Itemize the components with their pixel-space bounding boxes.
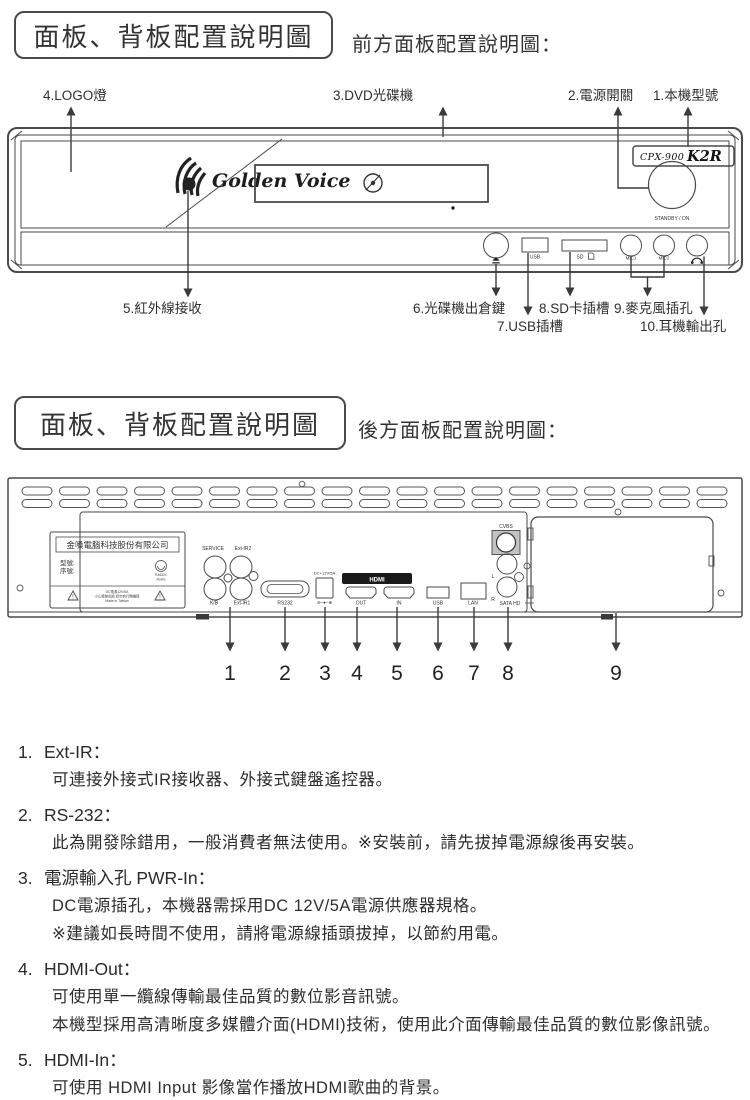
sd-card-icon	[588, 253, 593, 259]
rohs-code: R46321	[155, 573, 167, 577]
rs232-label: RS232	[277, 601, 293, 607]
golden-voice-logo-icon	[177, 158, 205, 196]
model-suffix: K2R	[686, 148, 722, 165]
note3-text-2: ※建議如長時間不使用，請將電源線插頭拔掉，以節約用電。	[18, 920, 734, 948]
model-prefix: CPX-900	[640, 152, 684, 163]
callout-mic-jacks: 9.麥克風插孔	[614, 301, 693, 316]
note2-text: 此為開發除錯用，一般消費者無法使用。※安裝前，請先拔掉電源線後再安裝。	[18, 829, 734, 857]
sata-hd-bay	[528, 517, 714, 612]
note1-title: Ext-IR：	[44, 742, 110, 762]
note2-number: 2.	[18, 801, 44, 829]
warn-line1: DC電源12V/5A	[106, 589, 130, 594]
brand-wordmark: Golden Voice	[212, 170, 350, 192]
callout-dvd-drive: 3.DVD光碟機	[333, 88, 414, 103]
spec-sticker: 金嗓電腦科技股份有限公司 型號: 序號: R46321 RoHS ! ! DC電…	[50, 532, 185, 608]
manual-page: 面板、背板配置說明圖 前方面板配置說明圖： 4.LOGO燈 3.DVD光碟機 2…	[0, 0, 750, 1100]
warning-triangle-icon-right: !	[155, 591, 165, 601]
standby-label: STANDBY / ON	[655, 216, 690, 222]
callout-headphone-out: 10.耳機輸出孔	[640, 319, 727, 334]
callout-leader-lines-bottom	[188, 191, 704, 314]
extir2-label: Ext-IR2	[235, 546, 252, 552]
note4-title: HDMI-Out：	[44, 959, 140, 979]
usb-label: USB	[530, 255, 541, 261]
note1-number: 1.	[18, 738, 44, 766]
disc-icon	[364, 174, 382, 192]
callout-ir-receiver: 5.紅外線接收	[123, 300, 202, 316]
audio-left-jack	[497, 554, 517, 574]
extir1-label: Ext-IR1	[234, 601, 251, 607]
note-item-3: 3.電源輸入孔 PWR-In： DC電源插孔，本機器需採用DC 12V/5A電源…	[18, 864, 734, 948]
number-9: 9	[610, 662, 622, 685]
note-item-5: 5.HDMI-In： 可使用 HDMI Input 影像當作播放HDMI歌曲的背…	[18, 1046, 734, 1100]
model-badge: CPX-900 K2R	[633, 146, 734, 166]
sd-label: SD	[577, 255, 584, 261]
warning-triangle-icon-left: !	[68, 591, 78, 601]
rs232-port: RS232	[261, 581, 309, 607]
note3-text-1: DC電源插孔，本機器需採用DC 12V/5A電源供應器規格。	[18, 892, 734, 920]
standby-button: STANDBY / ON	[649, 162, 696, 223]
front-panel-diagram: 4.LOGO燈 3.DVD光碟機 2.電源開關 1.本機型號	[0, 60, 750, 345]
callout-sd-slot: 8.SD卡插槽	[539, 301, 610, 316]
back-panel-diagram: 金嗓電腦科技股份有限公司 型號: 序號: R46321 RoHS ! ! DC電…	[0, 470, 750, 700]
warn-line3: Made in Taiwan	[105, 599, 129, 603]
cvbs-label: CVBS	[499, 524, 513, 530]
lan-label: LAN	[468, 601, 478, 607]
company-name: 金嗓電腦科技股份有限公司	[66, 540, 168, 550]
number-8: 8	[502, 662, 514, 685]
kb-label: K/B	[210, 601, 219, 607]
note4-text-2: 本機型採用高清晰度多媒體介面(HDMI)技術，使用此介面傳輸最佳品質的數位影像訊…	[18, 1011, 734, 1039]
number-2: 2	[279, 662, 291, 685]
rohs-label: RoHS	[156, 578, 166, 582]
section1-title: 面板、背板配置說明圖	[33, 17, 313, 54]
service-extir-jacks: SERVICE Ext-IR2 K/B Ext-IR1	[202, 546, 258, 607]
note-item-1: 1.Ext-IR： 可連接外接式IR接收器、外接式鍵盤遙控器。	[18, 738, 734, 794]
number-6: 6	[432, 662, 444, 685]
note1-text: 可連接外接式IR接收器、外接式鍵盤遙控器。	[18, 766, 734, 794]
number-leader-lines	[230, 607, 616, 650]
note2-title: RS-232：	[44, 805, 121, 825]
sata-label: SATA HD	[500, 601, 521, 607]
hdmi-out-label: OUT	[356, 601, 367, 607]
rohs-icon: R46321 RoHS	[155, 561, 167, 582]
service-label: SERVICE	[202, 546, 225, 552]
note5-title: HDMI-In：	[44, 1050, 127, 1070]
power-in-jack: DC+12V/5A ⊖–●–⊕	[314, 571, 336, 606]
callout-power-switch: 2.電源開關	[568, 88, 633, 103]
headphone-icon	[691, 258, 703, 264]
note-item-2: 2.RS-232： 此為開發除錯用，一般消費者無法使用。※安裝前，請先拔掉電源線…	[18, 801, 734, 857]
section1-title-box: 面板、背板配置說明圖	[14, 11, 333, 59]
callout-eject-key: 6.光碟機出倉鍵	[413, 301, 506, 316]
model-row-label: 型號:	[60, 558, 75, 567]
usb-port-front: USB	[522, 238, 548, 261]
dc-label: DC+12V/5A	[314, 571, 336, 576]
vent-grid	[22, 487, 727, 508]
note4-text-1: 可使用單一纜線傳輸最佳品質的數位影音訊號。	[18, 983, 734, 1011]
number-labels: 1 2 3 4 5 6 7 8 9	[224, 662, 622, 685]
eject-button	[484, 233, 509, 264]
number-5: 5	[391, 662, 403, 685]
hdmi-out-connector	[346, 587, 376, 598]
right-label: R	[491, 597, 495, 603]
callout-usb-slot: 7.USB插槽	[497, 319, 563, 334]
callout-model-number: 1.本機型號	[653, 88, 719, 103]
section2-subtitle: 後方面板配置說明圖：	[358, 414, 568, 443]
hdmi-in-label: IN	[397, 601, 402, 607]
sd-card-slot: SD	[562, 240, 607, 261]
hdmi-in-connector	[384, 587, 414, 598]
ir-receiver-dot	[183, 178, 196, 191]
warn-line2: 小心電擊危險 請勿自行開機殼	[94, 594, 140, 599]
polarity-icon: ⊖–●–⊕	[317, 600, 332, 605]
note4-number: 4.	[18, 955, 44, 983]
number-4: 4	[351, 662, 363, 685]
section2-title: 面板、背板配置說明圖	[40, 405, 320, 442]
usb-port-back: USB	[427, 587, 449, 607]
note5-number: 5.	[18, 1046, 44, 1074]
section1-subtitle: 前方面板配置說明圖：	[352, 28, 562, 57]
hdmi-bar-label: HDMI	[369, 578, 385, 584]
number-3: 3	[319, 662, 331, 685]
note3-number: 3.	[18, 864, 44, 892]
audio-right-jack	[497, 577, 517, 597]
front-chassis-frame	[8, 128, 742, 272]
callout-logo-light: 4.LOGO燈	[43, 88, 107, 103]
indicator-dot	[451, 206, 454, 209]
hdmi-block: HDMI OUT IN	[342, 573, 414, 607]
number-7: 7	[468, 662, 480, 685]
note5-text: 可使用 HDMI Input 影像當作播放HDMI歌曲的背景。	[18, 1074, 734, 1100]
lan-port: LAN	[461, 583, 486, 607]
left-label: L	[492, 574, 495, 580]
serial-row-label: 序號:	[60, 566, 75, 575]
note-item-4: 4.HDMI-Out： 可使用單一纜線傳輸最佳品質的數位影音訊號。 本機型採用高…	[18, 955, 734, 1039]
section2-title-box: 面板、背板配置說明圖	[14, 396, 346, 450]
note3-title: 電源輸入孔 PWR-In：	[44, 868, 215, 888]
usb-back-label: USB	[433, 601, 444, 607]
number-1: 1	[224, 662, 236, 685]
notes-list: 1.Ext-IR： 可連接外接式IR接收器、外接式鍵盤遙控器。 2.RS-232…	[18, 738, 734, 1100]
